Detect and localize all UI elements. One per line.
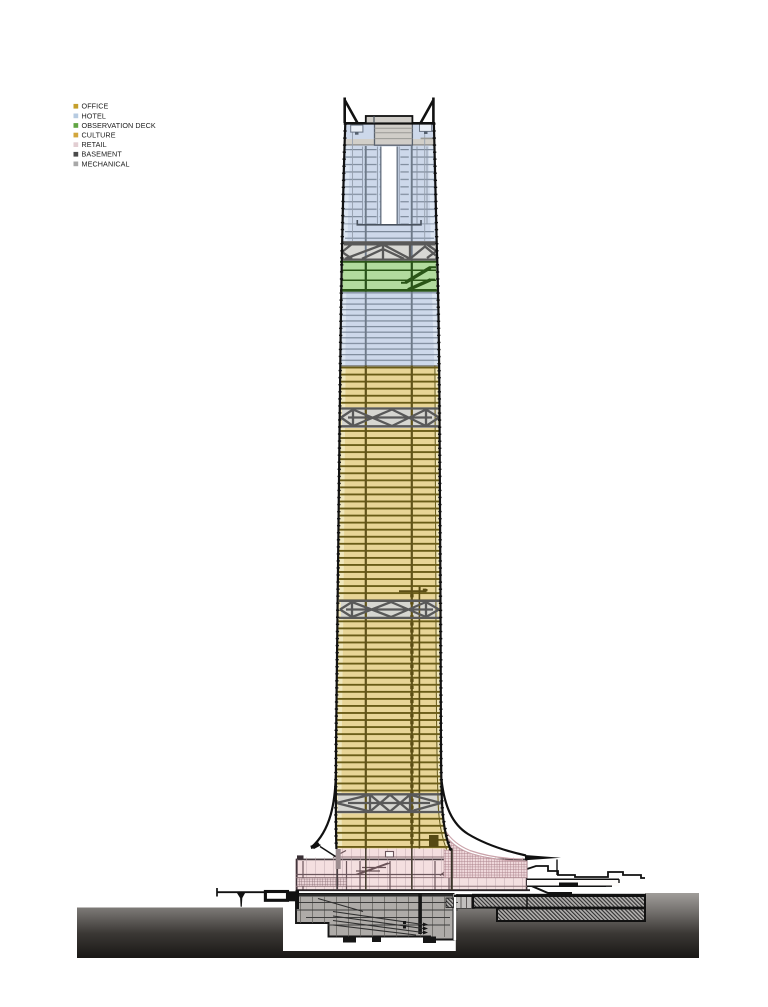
- svg-text:RETAIL: RETAIL: [82, 140, 107, 149]
- svg-text:BASEMENT: BASEMENT: [82, 150, 123, 159]
- svg-text:HOTEL: HOTEL: [82, 111, 106, 120]
- svg-text:CULTURE: CULTURE: [82, 131, 116, 140]
- svg-text:OBSERVATION DECK: OBSERVATION DECK: [82, 121, 156, 130]
- svg-text:MECHANICAL: MECHANICAL: [82, 159, 130, 168]
- svg-text:OFFICE: OFFICE: [82, 102, 109, 111]
